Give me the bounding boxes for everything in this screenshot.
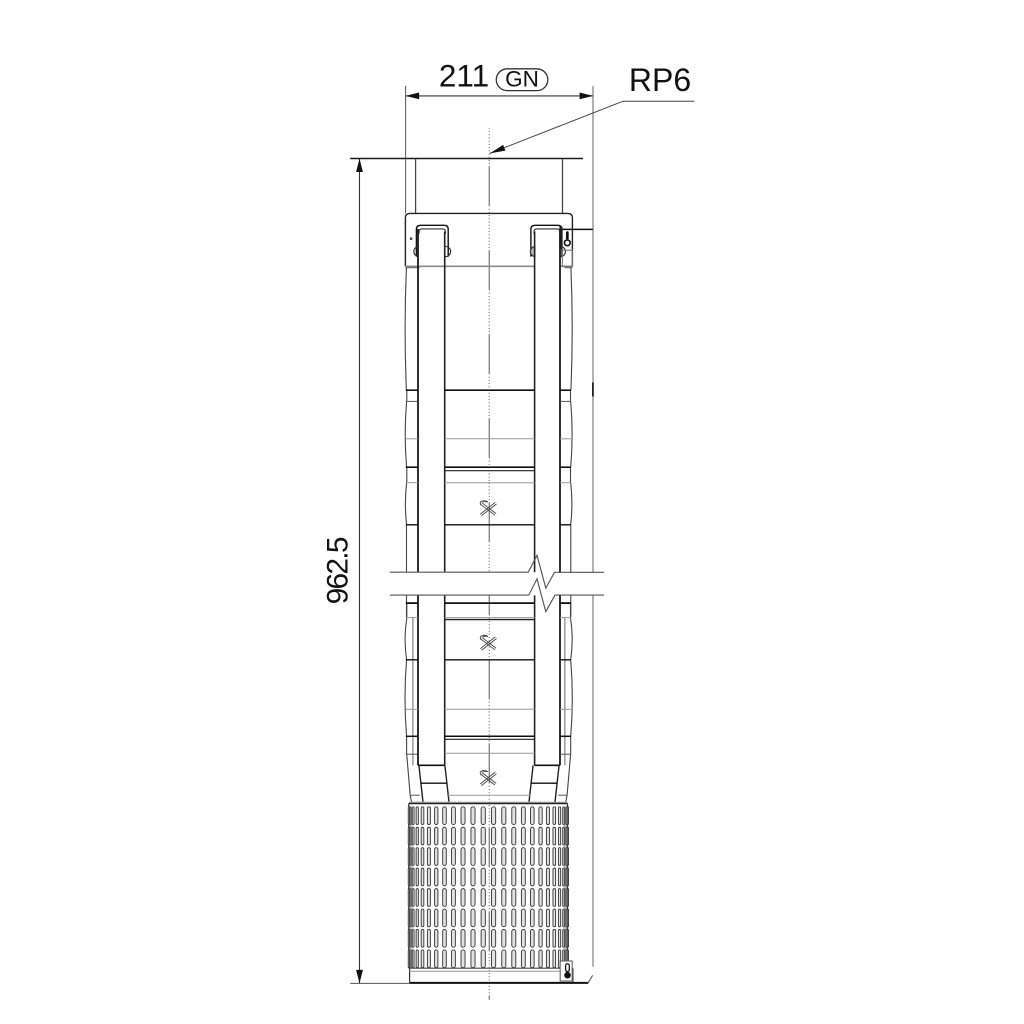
- svg-text:962.5: 962.5: [322, 537, 355, 604]
- svg-text:RP6: RP6: [629, 62, 691, 98]
- svg-text:GN: GN: [505, 67, 539, 92]
- svg-text:211: 211: [439, 58, 489, 94]
